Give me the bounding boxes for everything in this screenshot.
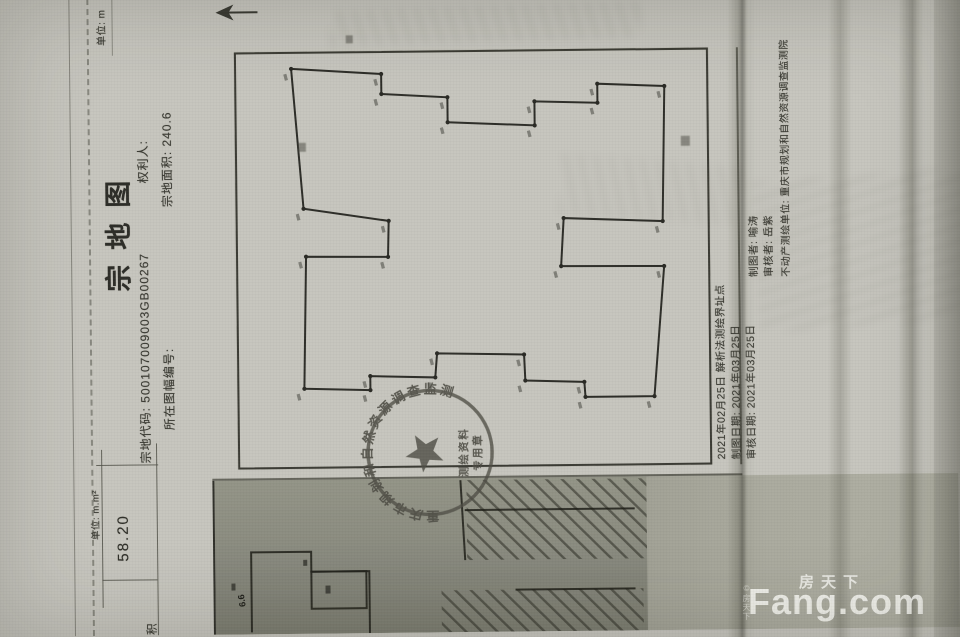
parcel-map-sheet: 单位: m 宗地图 宗地代码: 500107009003GB00267 权利人:… — [0, 0, 960, 637]
annotation-mark — [346, 35, 353, 43]
seal-text-line1: 测绘资料 — [457, 427, 471, 477]
parcel-code-value: 500107009003GB00267 — [137, 253, 153, 403]
parcel-code-label: 宗地代码: — [139, 407, 154, 463]
unit-note-rule — [111, 0, 113, 56]
adjacent-table-line-left — [102, 579, 157, 581]
annotation-mark — [298, 143, 306, 152]
official-seal: 重庆市规划和自然资源调查监测院 测绘资料 专用章 — [344, 367, 516, 539]
rights-holder: 权利人: — [134, 140, 151, 184]
annotation-mark — [681, 136, 690, 146]
plan-dimension-label: 6.6 — [236, 594, 248, 608]
fold-dashed-line — [86, 0, 95, 636]
adjacent-table-line-top — [101, 450, 104, 608]
survey-method-note: 2021年02月25日 解析法测绘界址点 — [712, 284, 729, 459]
adjacent-unit-label: 单位: m.m² — [87, 490, 102, 540]
scanned-document-photo: 单位: m 宗地图 宗地代码: 500107009003GB00267 权利人:… — [0, 0, 960, 637]
seal-star-icon — [401, 430, 445, 475]
watermark-brand-en: Fang.com — [748, 581, 926, 623]
reviewer: 审核者: 岳紫 — [761, 215, 777, 277]
review-date: 审核日期: 2021年03月25日 — [743, 324, 759, 459]
parcel-area-label: 宗地面积: — [160, 151, 175, 207]
parcel-area-value: 240.6 — [160, 111, 174, 146]
page-title: 宗地图 — [96, 166, 136, 292]
adjacent-area-value: 58.20 — [115, 514, 132, 562]
parcel-code: 宗地代码: 500107009003GB00267 — [135, 253, 154, 464]
unit-note: 单位: m — [92, 9, 107, 46]
parcel-area: 宗地面积: 240.6 — [158, 111, 176, 207]
adjacent-table-line-bottom — [156, 443, 159, 635]
drafter: 制图者: 喻涛 — [746, 215, 762, 277]
survey-unit: 不动产测绘单位: 重庆市规划和自然资源调查监测院 — [775, 39, 792, 277]
sheet-number: 所在图幅编号: — [160, 348, 178, 431]
north-arrow-icon — [215, 0, 259, 33]
drawing-date: 制图日期: 2021年03月25日 — [728, 325, 744, 460]
adjacent-table-line-right — [96, 464, 158, 466]
adjacent-row-label: 面积 — [144, 621, 160, 637]
top-rule — [68, 0, 76, 636]
seal-text-line2: 专用章 — [471, 433, 484, 471]
